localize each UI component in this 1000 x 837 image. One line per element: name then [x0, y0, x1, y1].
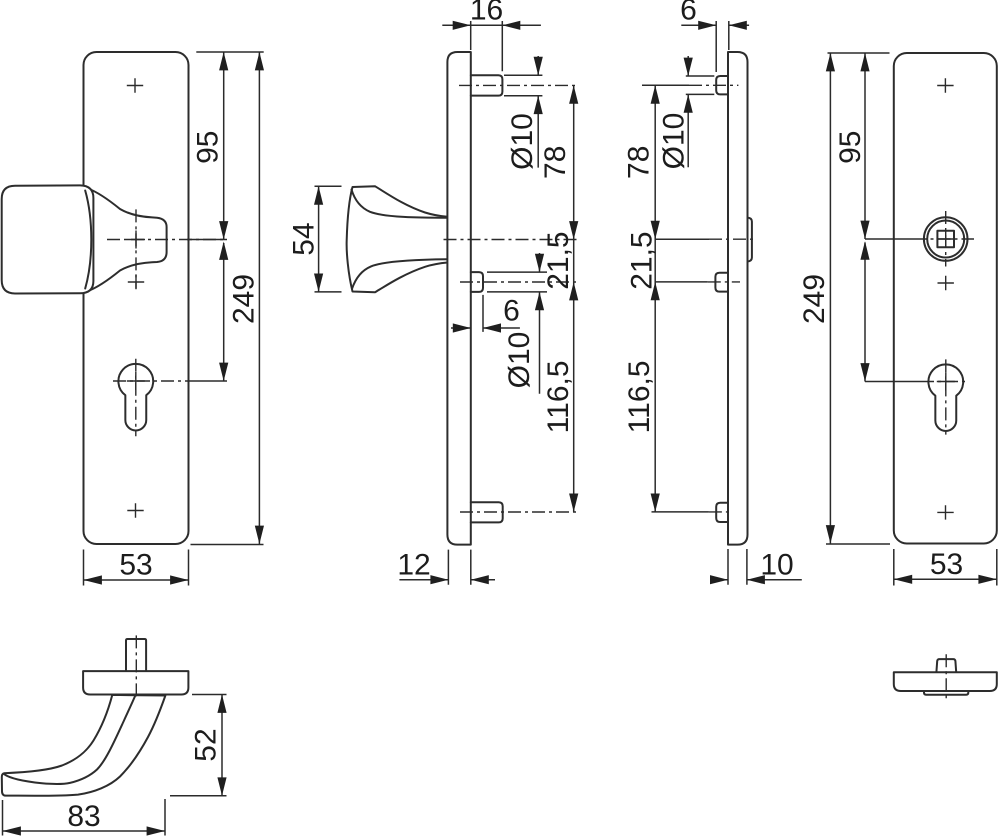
svg-text:78: 78 — [539, 146, 572, 179]
svg-text:116,5: 116,5 — [623, 360, 656, 433]
svg-text:54: 54 — [288, 222, 321, 255]
svg-text:21,5: 21,5 — [542, 231, 575, 289]
svg-text:Ø10: Ø10 — [657, 113, 690, 170]
svg-text:116,5: 116,5 — [542, 360, 575, 433]
svg-text:6: 6 — [680, 0, 697, 27]
svg-text:249: 249 — [798, 274, 831, 324]
svg-text:83: 83 — [67, 800, 100, 833]
svg-text:10: 10 — [760, 548, 793, 581]
svg-text:Ø10: Ø10 — [506, 113, 539, 170]
svg-text:21,5: 21,5 — [625, 231, 658, 289]
svg-text:Ø10: Ø10 — [503, 332, 536, 389]
svg-text:12: 12 — [397, 548, 430, 581]
svg-text:95: 95 — [192, 131, 225, 164]
svg-text:16: 16 — [470, 0, 503, 27]
svg-text:53: 53 — [930, 548, 963, 581]
svg-text:6: 6 — [503, 295, 520, 328]
svg-text:249: 249 — [228, 274, 261, 324]
svg-text:95: 95 — [834, 131, 867, 164]
svg-text:52: 52 — [190, 728, 223, 761]
svg-text:78: 78 — [622, 146, 655, 179]
svg-text:53: 53 — [119, 549, 152, 582]
